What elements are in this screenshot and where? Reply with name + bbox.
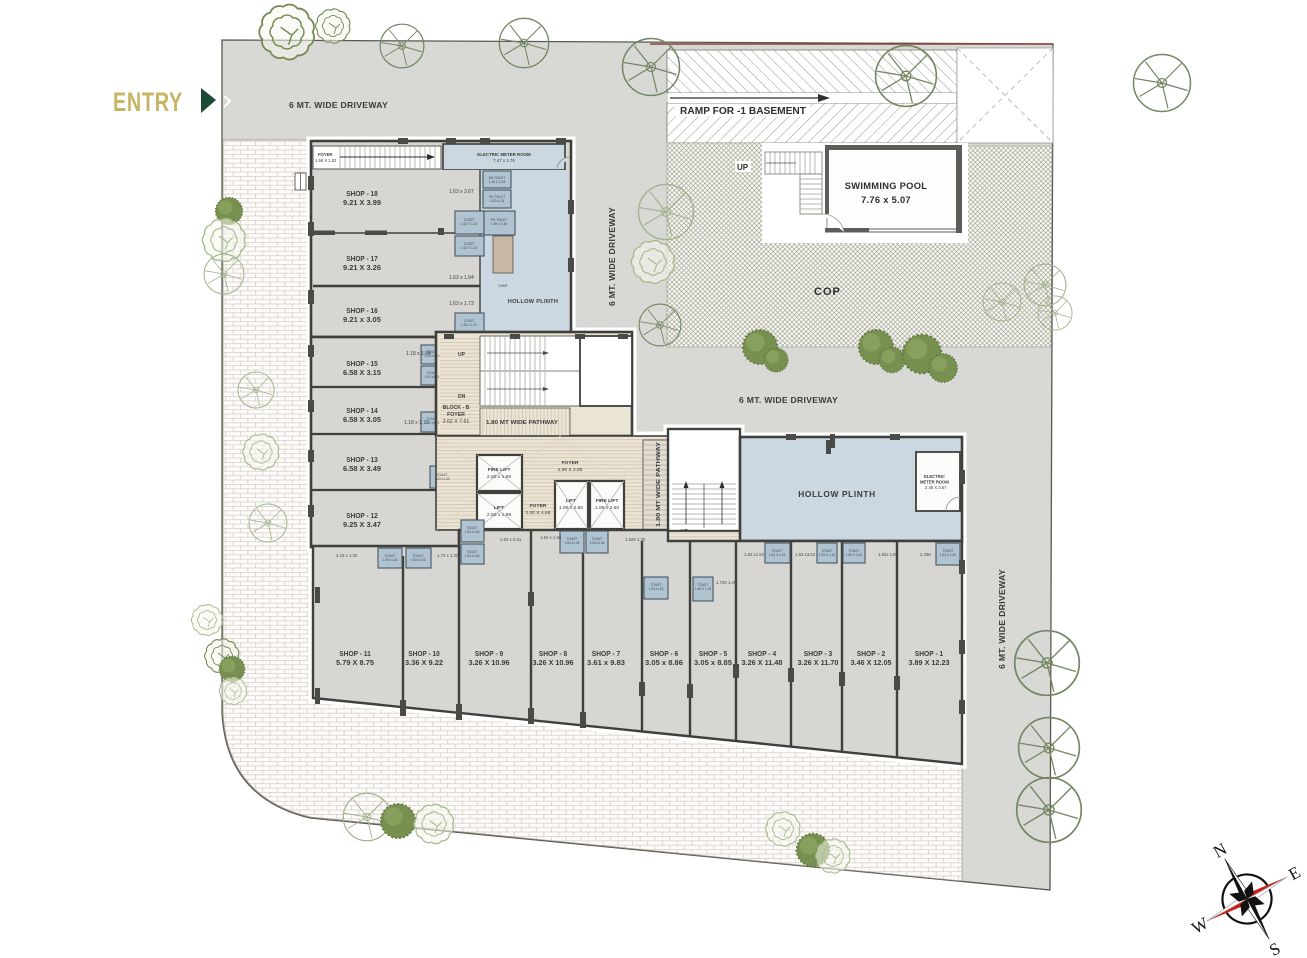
svg-text:1.53 x1.43: 1.53 x1.43 [435, 477, 450, 481]
svg-text:ENTRY: ENTRY [113, 87, 183, 117]
svg-text:1.52 X 1.22: 1.52 X 1.22 [461, 246, 478, 250]
svg-text:2.60 x 1.99: 2.60 x 1.99 [487, 474, 511, 480]
svg-text:1.58 X 1.52: 1.58 X 1.52 [315, 158, 337, 163]
svg-text:SHOP - 3: SHOP - 3 [804, 649, 832, 658]
svg-text:FIRE LIFT: FIRE LIFT [488, 467, 511, 473]
svg-text:9.25 X 3.47: 9.25 X 3.47 [343, 520, 381, 529]
svg-text:1.99 x 2.60: 1.99 x 2.60 [559, 505, 583, 511]
svg-text:SHOP - 13: SHOP - 13 [346, 455, 378, 464]
svg-text:HOLLOW PLINTH: HOLLOW PLINTH [798, 489, 876, 499]
svg-text:1.726 1.45: 1.726 1.45 [716, 580, 737, 585]
svg-text:2.84 x 2.61: 2.84 x 2.61 [500, 537, 522, 542]
svg-text:1.45 X 1.43: 1.45 X 1.43 [489, 180, 506, 184]
svg-text:7.76 x 5.07: 7.76 x 5.07 [861, 195, 911, 205]
svg-text:SHOP - 2: SHOP - 2 [857, 649, 885, 658]
svg-text:COP: COP [814, 286, 841, 298]
svg-text:LIFT: LIFT [494, 505, 504, 511]
svg-text:9.21 x 3.05: 9.21 x 3.05 [343, 315, 381, 324]
svg-text:SHOP - 7: SHOP - 7 [592, 649, 620, 658]
svg-text:3.26 X 11.70: 3.26 X 11.70 [798, 658, 839, 667]
svg-text:1.53 x1.31: 1.53 x1.31 [425, 375, 440, 379]
svg-text:1.53 x1.43: 1.53 x1.43 [565, 541, 580, 545]
svg-text:SHOP - 11: SHOP - 11 [339, 649, 371, 658]
svg-text:6.58 X 3.15: 6.58 X 3.15 [343, 368, 381, 377]
svg-text:1.99 x 2.60: 1.99 x 2.60 [595, 505, 619, 511]
svg-text:FOYER: FOYER [562, 460, 579, 466]
svg-text:SHOP - 6: SHOP - 6 [650, 649, 678, 658]
svg-text:1.94 x 1.66: 1.94 x 1.66 [540, 535, 562, 540]
svg-text:1.52 x 1.41: 1.52 x 1.41 [461, 323, 477, 327]
svg-text:3.26 X 10.96: 3.26 X 10.96 [533, 658, 574, 667]
svg-text:6.58 X 3.49: 6.58 X 3.49 [343, 464, 381, 473]
svg-text:1.53 X 1.43: 1.53 X 1.43 [769, 553, 786, 557]
svg-text:SHOP - 1: SHOP - 1 [915, 649, 943, 658]
svg-text:1.53 x1.43: 1.53 x1.43 [649, 587, 664, 591]
svg-text:1.63 x 1.73: 1.63 x 1.73 [449, 301, 474, 307]
svg-text:SHOP - 8: SHOP - 8 [539, 649, 567, 658]
svg-text:2.60 x 1.99: 2.60 x 1.99 [487, 512, 511, 518]
svg-text:6.58 X 3.05: 6.58 X 3.05 [343, 415, 381, 424]
svg-text:6 MT. WIDE DRIVEWAY: 6 MT. WIDE DRIVEWAY [997, 569, 1007, 669]
svg-text:3.36 X 9.22: 3.36 X 9.22 [405, 658, 443, 667]
svg-text:DN: DN [458, 394, 466, 400]
svg-text:7.47 x 1.76: 7.47 x 1.76 [493, 158, 515, 163]
svg-text:1.45 x1.43: 1.45 x1.43 [425, 354, 440, 358]
svg-text:3.26 X 11.48: 3.26 X 11.48 [742, 658, 783, 667]
svg-text:RAMP: RAMP [498, 284, 507, 288]
svg-text:2.00 X 4.66: 2.00 X 4.66 [525, 510, 550, 516]
svg-text:METER ROOM: METER ROOM [920, 480, 949, 485]
svg-text:6 MT. WIDE DRIVEWAY: 6 MT. WIDE DRIVEWAY [289, 100, 388, 110]
svg-text:6 MT. WIDE DRIVEWAY: 6 MT. WIDE DRIVEWAY [607, 207, 617, 306]
svg-text:1.53 X 1.43: 1.53 X 1.43 [819, 553, 836, 557]
svg-text:4.16 x 1.32: 4.16 x 1.32 [336, 553, 358, 558]
svg-text:1.95 x 1.46: 1.95 x 1.46 [491, 222, 507, 226]
svg-text:1.53 X 1.52: 1.53 X 1.52 [940, 553, 957, 557]
svg-text:HOLLOW PLINTH: HOLLOW PLINTH [508, 299, 559, 305]
svg-text:3.05 x 8.86: 3.05 x 8.86 [645, 658, 683, 667]
svg-text:3.46 X 12.05: 3.46 X 12.05 [851, 658, 892, 667]
svg-text:ELECTRIC METER ROOM: ELECTRIC METER ROOM [477, 152, 531, 157]
svg-text:FIRE LIFT: FIRE LIFT [596, 498, 619, 504]
svg-text:1.63 x 1.94: 1.63 x 1.94 [449, 275, 474, 281]
svg-text:9.21 X 3.99: 9.21 X 3.99 [343, 198, 381, 207]
svg-text:1.52 x1.22: 1.52 x1.22 [425, 421, 440, 425]
svg-text:2.62 X 7.61: 2.62 X 7.61 [443, 419, 470, 425]
svg-text:1.52 X 1.22: 1.52 X 1.22 [461, 222, 478, 226]
svg-text:SHOP - 4: SHOP - 4 [748, 649, 777, 658]
svg-text:5.79 X 8.75: 5.79 X 8.75 [336, 658, 374, 667]
svg-text:1.53 x1.43: 1.53 x1.43 [411, 558, 426, 562]
svg-text:FOYER: FOYER [318, 152, 332, 157]
svg-text:RAMP FOR -1 BASEMENT: RAMP FOR -1 BASEMENT [680, 106, 806, 117]
svg-text:3.26 X 10.96: 3.26 X 10.96 [469, 658, 510, 667]
svg-text:SHOP - 18: SHOP - 18 [346, 189, 378, 198]
svg-text:1.53 x1.31: 1.53 x1.31 [490, 199, 505, 203]
svg-text:SHOP - 5: SHOP - 5 [699, 649, 727, 658]
svg-text:1.80 MT WIDE PATHWAY: 1.80 MT WIDE PATHWAY [486, 420, 558, 426]
svg-text:SHOP - 16: SHOP - 16 [346, 306, 378, 315]
svg-text:3.89 X 12.23: 3.89 X 12.23 [909, 658, 950, 667]
svg-text:SHOP - 15: SHOP - 15 [346, 359, 378, 368]
svg-text:1.626 1.35: 1.626 1.35 [625, 537, 646, 542]
svg-text:1.52 x1.52: 1.52 x1.52 [744, 552, 765, 557]
svg-text:6 MT. WIDE DRIVEWAY: 6 MT. WIDE DRIVEWAY [739, 395, 838, 405]
svg-text:2.256: 2.256 [920, 552, 931, 557]
svg-text:SHOP - 12: SHOP - 12 [346, 511, 378, 520]
svg-text:1.80 MT WIDE PATHWAY: 1.80 MT WIDE PATHWAY [656, 441, 662, 527]
svg-text:1.72 x 1.32: 1.72 x 1.32 [437, 553, 459, 558]
svg-text:1.45 x1.43: 1.45 x1.43 [383, 558, 398, 562]
svg-text:4.99 X 2.89: 4.99 X 2.89 [557, 467, 582, 473]
svg-text:UP: UP [737, 163, 749, 172]
svg-text:1.84x 1.65: 1.84x 1.65 [878, 552, 899, 557]
svg-text:1.53 X 2.43: 1.53 X 2.43 [846, 553, 863, 557]
svg-text:BLOCK - B: BLOCK - B [443, 405, 470, 411]
svg-text:SHOP - 14: SHOP - 14 [346, 406, 378, 415]
svg-text:1.53 x1.43: 1.53 x1.43 [590, 541, 605, 545]
svg-text:1.63 x 3.67: 1.63 x 3.67 [449, 189, 474, 195]
svg-text:2.48 X 3.67: 2.48 X 3.67 [925, 485, 947, 490]
svg-text:1.53 x1.43: 1.53 x1.43 [465, 554, 480, 558]
svg-text:9.21 X 3.26: 9.21 X 3.26 [343, 263, 381, 272]
svg-text:UP: UP [458, 352, 466, 358]
svg-text:1.53 x1.43: 1.53 x1.43 [465, 530, 480, 534]
svg-text:SHOP - 9: SHOP - 9 [475, 649, 503, 658]
svg-text:ELECTRIC: ELECTRIC [924, 474, 945, 479]
svg-text:SHOP - 10: SHOP - 10 [408, 649, 440, 658]
svg-text:FOYER: FOYER [530, 503, 547, 509]
svg-text:FOYER: FOYER [447, 412, 465, 418]
svg-text:1.63 x3.63: 1.63 x3.63 [795, 552, 816, 557]
svg-text:SWIMMING POOL: SWIMMING POOL [845, 181, 927, 191]
svg-text:LIFT: LIFT [566, 498, 576, 504]
svg-text:3.05 x 8.85: 3.05 x 8.85 [694, 658, 732, 667]
svg-text:3.61 x 9.83: 3.61 x 9.83 [587, 658, 625, 667]
svg-text:1.48 X 1.15: 1.48 X 1.15 [695, 587, 712, 591]
svg-text:SHOP - 17: SHOP - 17 [346, 254, 378, 263]
